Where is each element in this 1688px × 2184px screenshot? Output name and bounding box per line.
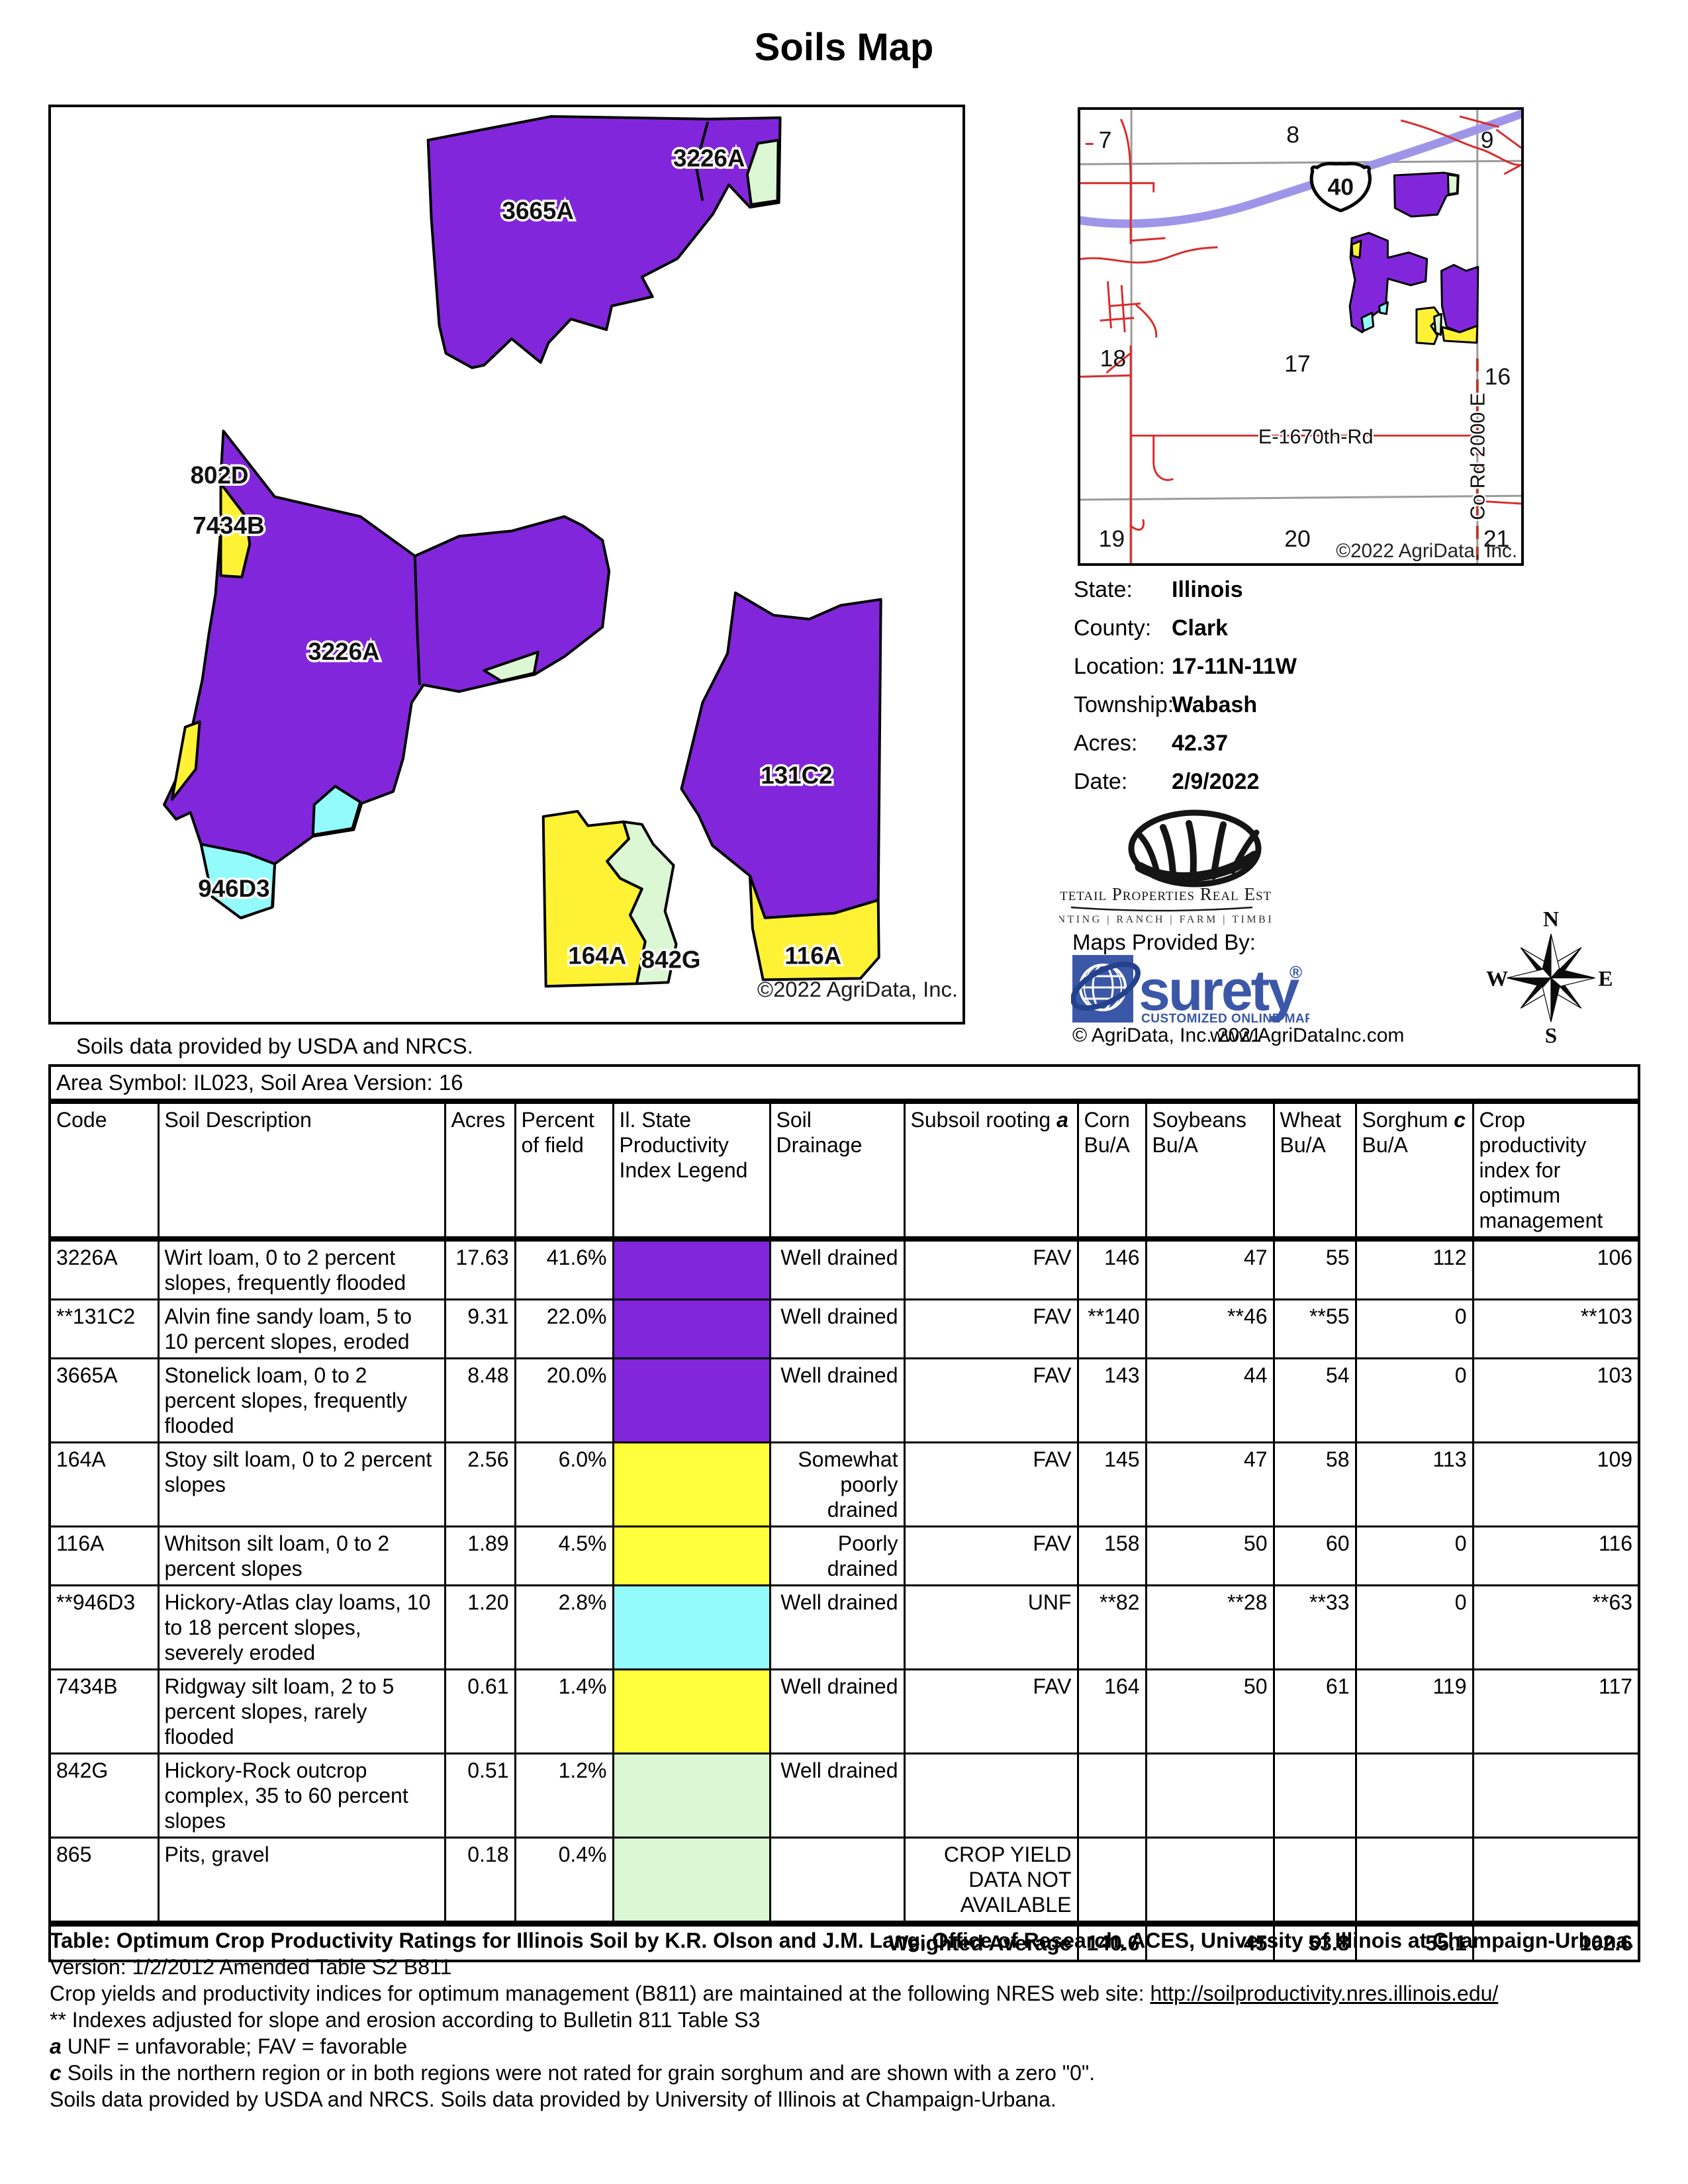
soybeans-bua: **46: [1146, 1300, 1274, 1359]
info-value: Wabash: [1172, 692, 1257, 718]
info-date: Date:2/9/2022: [1074, 769, 1524, 795]
info-state: State:Illinois: [1074, 577, 1524, 603]
section-line: [1080, 161, 1521, 164]
soybeans-bua: 50: [1146, 1527, 1274, 1586]
road-label-e1670: E-1670th-Rd: [1258, 426, 1374, 448]
locator-soil-shapes: [1350, 173, 1478, 344]
acres: 0.51: [445, 1754, 515, 1838]
soil-label: 842G: [641, 946, 701, 973]
wheat-bua: 55: [1274, 1239, 1356, 1300]
soil-table-row: **946D3Hickory-Atlas clay loams, 10 to 1…: [50, 1586, 1639, 1670]
corn-bua: 146: [1078, 1239, 1146, 1300]
soybeans-bua: 44: [1146, 1359, 1274, 1443]
soil-description: Ridgway silt loam, 2 to 5 percent slopes…: [158, 1670, 445, 1754]
info-label: Date:: [1074, 769, 1127, 794]
info-label: Location:: [1074, 654, 1165, 679]
whitetail-properties-logo: Whitetail Properties Real Estate HUNTING…: [1059, 806, 1271, 929]
soil-map: 3226A 3665A 802D 7434B 3226A 131C2 946D3…: [48, 105, 965, 1024]
soil-table-row: 164AStoy silt loam, 0 to 2 percent slope…: [50, 1443, 1639, 1527]
percent-of-field: 41.6%: [515, 1239, 613, 1300]
soil-description: Whitson silt loam, 0 to 2 percent slopes: [158, 1527, 445, 1586]
soil-label: 802D: [191, 462, 249, 489]
footnote-c: c Soils in the northern region or in bot…: [50, 2060, 1641, 2086]
wheat-bua: 60: [1274, 1527, 1356, 1586]
soil-description: Hickory-Atlas clay loams, 10 to 18 perce…: [158, 1586, 445, 1670]
soil-label: 3226A: [308, 638, 379, 665]
locator-canvas: 40 7 8 9 18 17 16 19 20 21 E-1670th-Rd C…: [1080, 110, 1521, 563]
acres: 1.89: [445, 1527, 515, 1586]
soybeans-bua: [1146, 1754, 1274, 1838]
subsoil-rooting: CROP YIELD DATA NOT AVAILABLE: [904, 1838, 1078, 1924]
soil-label: 131C2: [761, 762, 832, 789]
locator-map: 40 7 8 9 18 17 16 19 20 21 E-1670th-Rd C…: [1078, 107, 1524, 566]
code: 3665A: [50, 1359, 158, 1443]
crop-productivity-index: [1473, 1838, 1639, 1924]
info-label: Township:: [1074, 692, 1174, 717]
legend-swatch: [613, 1239, 770, 1300]
sorghum-bua: [1356, 1754, 1473, 1838]
compass-south-label: S: [1545, 1024, 1557, 1045]
column-header: Percent of field: [515, 1101, 613, 1239]
footnote-indexes: ** Indexes adjusted for slope and erosio…: [50, 2007, 1641, 2033]
crop-productivity-index: 103: [1473, 1359, 1639, 1443]
page-title: Soils Map: [0, 25, 1688, 69]
soil-description: Pits, gravel: [158, 1838, 445, 1924]
compass-west-label: W: [1486, 966, 1508, 991]
soybeans-bua: 50: [1146, 1670, 1274, 1754]
soil-label: 164A: [568, 942, 626, 969]
section-number: 17: [1284, 350, 1311, 377]
wheat-bua: **33: [1274, 1586, 1356, 1670]
soil-drainage: Well drained: [770, 1300, 904, 1359]
percent-of-field: 1.2%: [515, 1754, 613, 1838]
footnote-rest: Version: 1/2/2012 Amended Table S2 B811: [50, 1955, 451, 1979]
soil-label: 7434B: [193, 512, 264, 539]
crop-productivity-index: [1473, 1754, 1639, 1838]
subsoil-rooting: [904, 1754, 1078, 1838]
wheat-bua: [1274, 1754, 1356, 1838]
surety-subtitle: CUSTOMIZED ONLINE MAPPING: [1141, 1012, 1309, 1026]
column-header: Soil Description: [158, 1101, 445, 1239]
soil-drainage: Well drained: [770, 1670, 904, 1754]
info-value: Clark: [1172, 615, 1228, 641]
subsoil-rooting: UNF: [904, 1586, 1078, 1670]
wheat-bua: 61: [1274, 1670, 1356, 1754]
column-header: Code: [50, 1101, 158, 1239]
footnote-table-source: Table: Optimum Crop Productivity Ratings…: [50, 1927, 1641, 1980]
footnote-text: Crop yields and productivity indices for…: [50, 1981, 1150, 2005]
soil-table-row: 3665AStonelick loam, 0 to 2 percent slop…: [50, 1359, 1639, 1443]
soybeans-bua: **28: [1146, 1586, 1274, 1670]
soil-drainage: Well drained: [770, 1239, 904, 1300]
footnote-a: a UNF = unfavorable; FAV = favorable: [50, 2033, 1641, 2060]
acres: 0.61: [445, 1670, 515, 1754]
percent-of-field: 20.0%: [515, 1359, 613, 1443]
info-acres: Acres:42.37: [1074, 731, 1524, 756]
compass-main-points: [1507, 934, 1595, 1022]
soil-label: 3226A: [673, 144, 745, 171]
code: 164A: [50, 1443, 158, 1527]
map-copyright: ©2022 AgriData, Inc.: [757, 977, 958, 1001]
section-number: 9: [1481, 126, 1494, 153]
footnote-text: Soils in the northern region or in both …: [62, 2061, 1095, 2085]
footnote-nres: Crop yields and productivity indices for…: [50, 1980, 1641, 2007]
divider-swoosh: [1071, 907, 1252, 911]
soil-description: Stonelick loam, 0 to 2 percent slopes, f…: [158, 1359, 445, 1443]
section-number: 7: [1099, 126, 1112, 153]
compass-rose-icon: N S W E: [1485, 902, 1617, 1045]
column-header: Il. State Productivity Index Legend: [613, 1101, 770, 1239]
column-header: Subsoil rooting a: [904, 1101, 1078, 1239]
legend-swatch: [613, 1443, 770, 1527]
wheat-bua: [1274, 1838, 1356, 1924]
crop-productivity-index: 117: [1473, 1670, 1639, 1754]
soil-description: Alvin fine sandy loam, 5 to 10 percent s…: [158, 1300, 445, 1359]
wheat-bua: 54: [1274, 1359, 1356, 1443]
area-symbol-header: Area Symbol: IL023, Soil Area Version: 1…: [50, 1066, 1639, 1101]
percent-of-field: 6.0%: [515, 1443, 613, 1527]
soil-table-row: 116AWhitson silt loam, 0 to 2 percent sl…: [50, 1527, 1639, 1586]
legend-swatch: [613, 1754, 770, 1838]
soil-table-row: **131C2Alvin fine sandy loam, 5 to 10 pe…: [50, 1300, 1639, 1359]
code: 842G: [50, 1754, 158, 1838]
percent-of-field: 22.0%: [515, 1300, 613, 1359]
route-40-number: 40: [1327, 174, 1354, 201]
soil-label: 116A: [784, 942, 841, 969]
nres-link[interactable]: http://soilproductivity.nres.illinois.ed…: [1150, 1981, 1498, 2005]
acres: 17.63: [445, 1239, 515, 1300]
code: 116A: [50, 1527, 158, 1586]
legend-swatch: [613, 1527, 770, 1586]
column-header: Corn Bu/A: [1078, 1101, 1146, 1239]
soybeans-bua: 47: [1146, 1239, 1274, 1300]
subsoil-rooting: FAV: [904, 1359, 1078, 1443]
percent-of-field: 1.4%: [515, 1670, 613, 1754]
registered-mark: ®: [1289, 962, 1302, 982]
soil-table-row: 3226AWirt loam, 0 to 2 percent slopes, f…: [50, 1239, 1639, 1300]
code: **946D3: [50, 1586, 158, 1670]
corn-bua: 164: [1078, 1670, 1146, 1754]
corn-bua: **82: [1078, 1586, 1146, 1670]
subsoil-rooting: FAV: [904, 1670, 1078, 1754]
section-number: 20: [1284, 525, 1311, 552]
crop-productivity-index: 109: [1473, 1443, 1639, 1527]
surety-logo: surety ® CUSTOMIZED ONLINE MAPPING: [1071, 953, 1309, 1026]
acres: 8.48: [445, 1359, 515, 1443]
soil-table-row: 7434BRidgway silt loam, 2 to 5 percent s…: [50, 1670, 1639, 1754]
map-source-note: Soils data provided by USDA and NRCS.: [76, 1034, 473, 1059]
acres: 2.56: [445, 1443, 515, 1527]
info-value: 42.37: [1172, 731, 1228, 756]
sorghum-bua: [1356, 1838, 1473, 1924]
legend-swatch: [613, 1838, 770, 1924]
column-header: Acres: [445, 1101, 515, 1239]
legend-swatch: [613, 1359, 770, 1443]
corn-bua: [1078, 1754, 1146, 1838]
info-township: Township:Wabash: [1074, 692, 1524, 718]
corn-bua: 143: [1078, 1359, 1146, 1443]
soil-drainage: Well drained: [770, 1359, 904, 1443]
soil-drainage: Well drained: [770, 1586, 904, 1670]
percent-of-field: 4.5%: [515, 1527, 613, 1586]
soil-polygon-131C2: [681, 593, 880, 918]
info-value: Illinois: [1172, 577, 1243, 603]
column-header: Sorghum c Bu/A: [1356, 1101, 1473, 1239]
whitetail-name: Whitetail Properties Real Estate: [1059, 884, 1271, 904]
column-header: Soybeans Bu/A: [1146, 1101, 1274, 1239]
acres: 0.18: [445, 1838, 515, 1924]
sorghum-bua: 113: [1356, 1443, 1473, 1527]
sorghum-bua: 119: [1356, 1670, 1473, 1754]
corn-bua: **140: [1078, 1300, 1146, 1359]
info-label: State:: [1074, 577, 1133, 602]
compass-north-label: N: [1543, 907, 1559, 932]
soil-label: 3665A: [502, 197, 574, 224]
footnote-usda: Soils data provided by USDA and NRCS. So…: [50, 2086, 1641, 2113]
wheat-bua: **55: [1274, 1300, 1356, 1359]
column-header: Soil Drainage: [770, 1101, 904, 1239]
soybeans-bua: [1146, 1838, 1274, 1924]
soybeans-bua: 47: [1146, 1443, 1274, 1527]
acres: 1.20: [445, 1586, 515, 1670]
section-number: 16: [1485, 363, 1511, 390]
soil-table-row: 865Pits, gravel0.180.4%CROP YIELD DATA N…: [50, 1838, 1639, 1924]
soil-map-canvas: 3226A 3665A 802D 7434B 3226A 131C2 946D3…: [51, 107, 962, 1022]
corn-bua: 158: [1078, 1527, 1146, 1586]
agridata-credit: © AgriData, Inc. 2021 www.AgriDataInc.co…: [1072, 1024, 1523, 1047]
info-value: 2/9/2022: [1172, 769, 1259, 795]
footnote-em: a: [50, 2034, 62, 2058]
soil-table-row: 842GHickory-Rock outcrop complex, 35 to …: [50, 1754, 1639, 1838]
legend-swatch: [613, 1586, 770, 1670]
crop-productivity-index: 116: [1473, 1527, 1639, 1586]
acres: 9.31: [445, 1300, 515, 1359]
locator-copyright: ©2022 AgriData, Inc.: [1336, 540, 1517, 562]
crop-productivity-index: **103: [1473, 1300, 1639, 1359]
subsoil-rooting: FAV: [904, 1443, 1078, 1527]
section-number: 8: [1286, 122, 1299, 148]
legend-swatch: [613, 1670, 770, 1754]
soil-drainage: [770, 1838, 904, 1924]
soils-table: Area Symbol: IL023, Soil Area Version: 1…: [48, 1064, 1640, 1962]
soil-description: Hickory-Rock outcrop complex, 35 to 60 p…: [158, 1754, 445, 1838]
column-header: Crop productivity index for optimum mana…: [1473, 1101, 1639, 1239]
sorghum-bua: 112: [1356, 1239, 1473, 1300]
soil-description: Stoy silt loam, 0 to 2 percent slopes: [158, 1443, 445, 1527]
agridata-website[interactable]: www.AgriDataInc.com: [1210, 1024, 1404, 1047]
section-number: 18: [1100, 345, 1127, 371]
maps-provided-by-label: Maps Provided By:: [1072, 930, 1256, 955]
corn-bua: 145: [1078, 1443, 1146, 1527]
percent-of-field: 2.8%: [515, 1586, 613, 1670]
corn-bua: [1078, 1838, 1146, 1924]
info-location: Location:17-11N-11W: [1074, 654, 1524, 680]
column-header: Wheat Bu/A: [1274, 1101, 1356, 1239]
info-county: County:Clark: [1074, 615, 1524, 641]
soil-drainage: Well drained: [770, 1754, 904, 1838]
soil-description: Wirt loam, 0 to 2 percent slopes, freque…: [158, 1239, 445, 1300]
footnote-bold: Table: Optimum Crop Productivity Ratings…: [50, 1929, 1634, 1952]
info-value: 17-11N-11W: [1172, 654, 1297, 680]
code: **131C2: [50, 1300, 158, 1359]
sorghum-bua: 0: [1356, 1300, 1473, 1359]
code: 7434B: [50, 1670, 158, 1754]
footnote-text: UNF = unfavorable; FAV = favorable: [62, 2034, 407, 2058]
subsoil-rooting: FAV: [904, 1239, 1078, 1300]
legend-swatch: [613, 1300, 770, 1359]
highway-40-line: [1080, 113, 1521, 224]
sorghum-bua: 0: [1356, 1527, 1473, 1586]
footnotes: Table: Optimum Crop Productivity Ratings…: [50, 1927, 1641, 2113]
section-line: [1080, 496, 1521, 500]
subsoil-rooting: FAV: [904, 1527, 1078, 1586]
crop-productivity-index: **63: [1473, 1586, 1639, 1670]
info-label: Acres:: [1074, 731, 1137, 756]
wheat-bua: 58: [1274, 1443, 1356, 1527]
subsoil-rooting: FAV: [904, 1300, 1078, 1359]
road-label-cord2000e: Co Rd 2000 E: [1467, 393, 1489, 520]
whitetail-tagline: HUNTING | RANCH | FARM | TIMBER: [1059, 914, 1271, 925]
percent-of-field: 0.4%: [515, 1838, 613, 1924]
soil-drainage: Poorly drained: [770, 1527, 904, 1586]
info-label: County:: [1074, 615, 1151, 641]
section-number: 19: [1099, 525, 1125, 552]
sorghum-bua: 0: [1356, 1359, 1473, 1443]
compass-east-label: E: [1598, 966, 1613, 991]
soil-drainage: Somewhat poorly drained: [770, 1443, 904, 1527]
code: 3226A: [50, 1239, 158, 1300]
crop-productivity-index: 106: [1473, 1239, 1639, 1300]
table-header-row: CodeSoil DescriptionAcresPercent of fiel…: [50, 1101, 1639, 1239]
footnote-em: c: [50, 2061, 62, 2085]
sorghum-bua: 0: [1356, 1586, 1473, 1670]
code: 865: [50, 1838, 158, 1924]
soil-label: 946D3: [198, 875, 269, 902]
